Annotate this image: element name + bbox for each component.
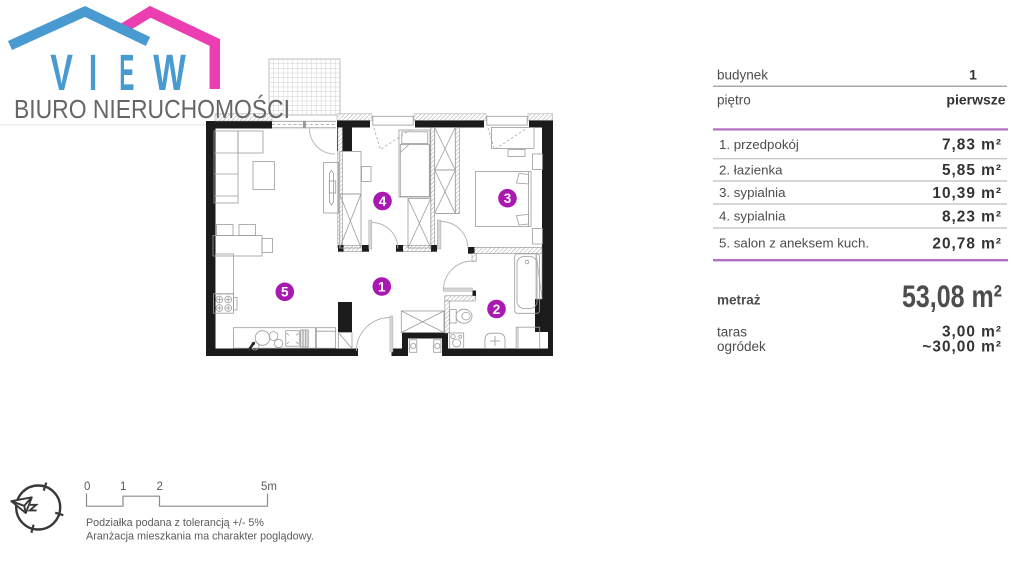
svg-text:4. sypialnia: 4. sypialnia [719,209,786,224]
svg-text:4: 4 [379,194,387,209]
svg-text:V: V [50,44,73,101]
svg-text:53,08 m²: 53,08 m² [902,278,1002,314]
svg-text:W: W [153,44,186,101]
svg-text:2: 2 [157,481,163,493]
svg-text:3. sypialnia: 3. sypialnia [719,185,786,200]
svg-text:5. salon z aneksem kuch.: 5. salon z aneksem kuch. [719,236,869,251]
svg-text:1: 1 [969,67,977,83]
svg-text:20,78 m²: 20,78 m² [932,235,1002,252]
svg-text:E: E [119,44,134,101]
svg-text:metraż: metraż [717,293,761,308]
svg-text:2: 2 [493,302,501,317]
svg-text:piętro: piętro [717,93,751,108]
svg-text:5m: 5m [261,481,277,493]
svg-text:5: 5 [281,285,289,300]
svg-text:5,85 m²: 5,85 m² [942,162,1002,179]
svg-text:I: I [89,44,97,101]
svg-text:2. łazienka: 2. łazienka [719,162,783,177]
svg-text:~30,00 m²: ~30,00 m² [922,339,1002,356]
svg-text:1: 1 [120,481,126,493]
svg-text:7,83 m²: 7,83 m² [942,137,1002,154]
svg-text:taras: taras [717,325,747,340]
svg-text:1. przedpokój: 1. przedpokój [719,137,799,152]
svg-text:10,39 m²: 10,39 m² [932,185,1002,202]
svg-text:BIURO NIERUCHOMOŚCI: BIURO NIERUCHOMOŚCI [14,94,290,124]
svg-text:ogródek: ogródek [717,339,766,354]
svg-text:0: 0 [84,481,90,493]
svg-text:3: 3 [504,191,512,206]
svg-text:pierwsze: pierwsze [946,92,1005,108]
svg-text:Podziałka podana z tolerancją: Podziałka podana z tolerancją +/- 5% [86,517,264,529]
svg-text:1: 1 [378,279,386,294]
svg-text:8,23 m²: 8,23 m² [942,208,1002,225]
svg-text:budynek: budynek [717,68,768,83]
svg-text:Aranżacja mieszkania ma charak: Aranżacja mieszkania ma charakter pogląd… [86,531,314,543]
